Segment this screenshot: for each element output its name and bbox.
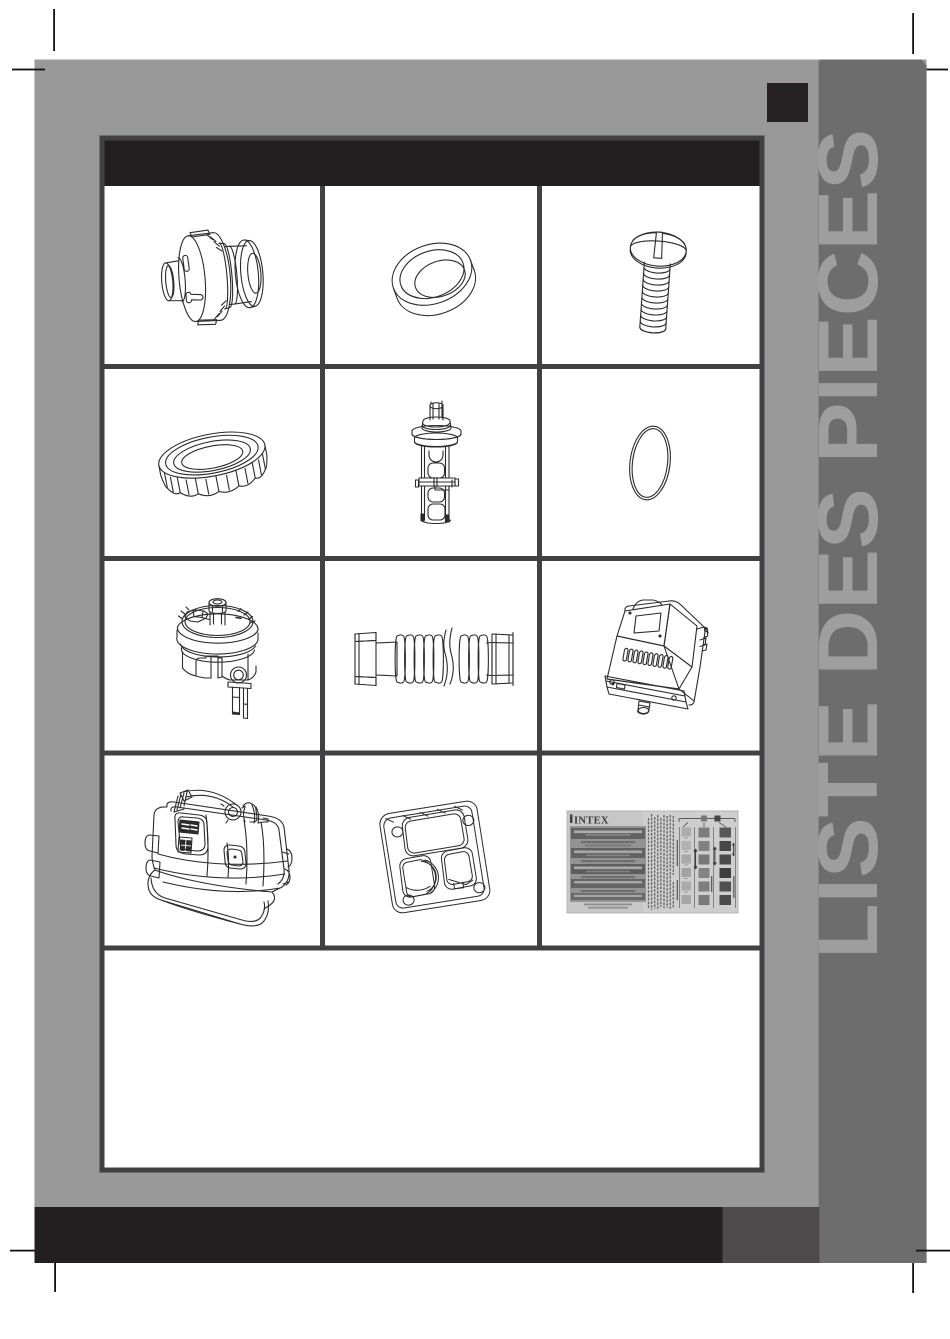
svg-text:LISTE DES PIECES: LISTE DES PIECES bbox=[801, 129, 895, 959]
svg-text:INTEX: INTEX bbox=[574, 816, 609, 827]
